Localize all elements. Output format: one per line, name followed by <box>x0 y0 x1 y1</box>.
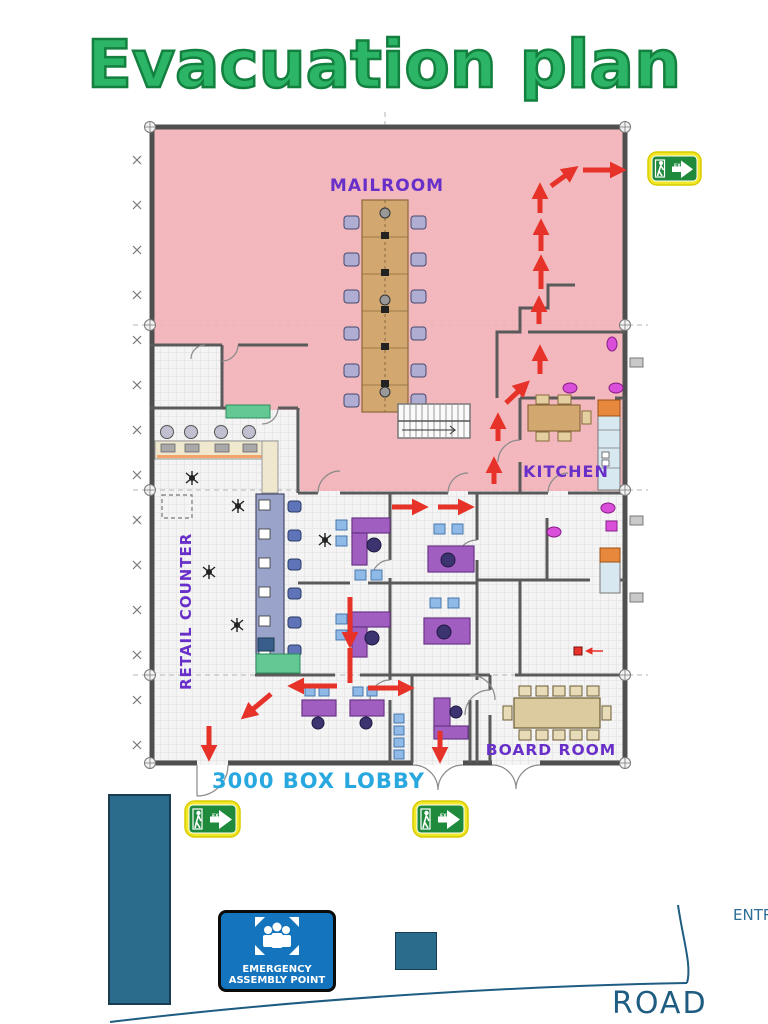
assembly-sign-line1: EMERGENCY <box>221 964 333 975</box>
exit-sign-bottom-left: EXIT <box>185 801 240 837</box>
assembly-sign-line2: ASSEMBLY POINT <box>221 975 333 986</box>
exit-sign-top-right: EXIT <box>648 152 701 185</box>
road-edge-line <box>110 983 687 1022</box>
assembly-point-icon <box>221 913 333 959</box>
board-room-table <box>503 686 611 740</box>
mailroom-label: MAILROOM <box>330 176 444 196</box>
kitchen-label: KITCHEN <box>523 462 609 481</box>
radiators <box>630 358 643 602</box>
entrance-label: ENTR <box>733 906 768 924</box>
exit-sign-bottom-middle: EXIT <box>413 801 468 837</box>
kitchenette <box>600 548 620 593</box>
site-small-block <box>395 932 437 970</box>
retail-counter-label: RETAIL COUNTER <box>177 533 195 690</box>
column-markers <box>133 156 141 749</box>
assembly-point-sign: EMERGENCY ASSEMBLY POINT <box>218 910 336 992</box>
board-room-label: BOARD ROOM <box>486 741 616 759</box>
evacuation-plan-page: Evacuation plan <box>0 0 768 1024</box>
entrance-curve <box>678 905 688 983</box>
lobby-label: 3000 BOX LOBBY <box>212 769 425 793</box>
stairs <box>398 404 470 438</box>
road-label: ROAD <box>612 986 708 1021</box>
site-building-block <box>108 794 171 1005</box>
